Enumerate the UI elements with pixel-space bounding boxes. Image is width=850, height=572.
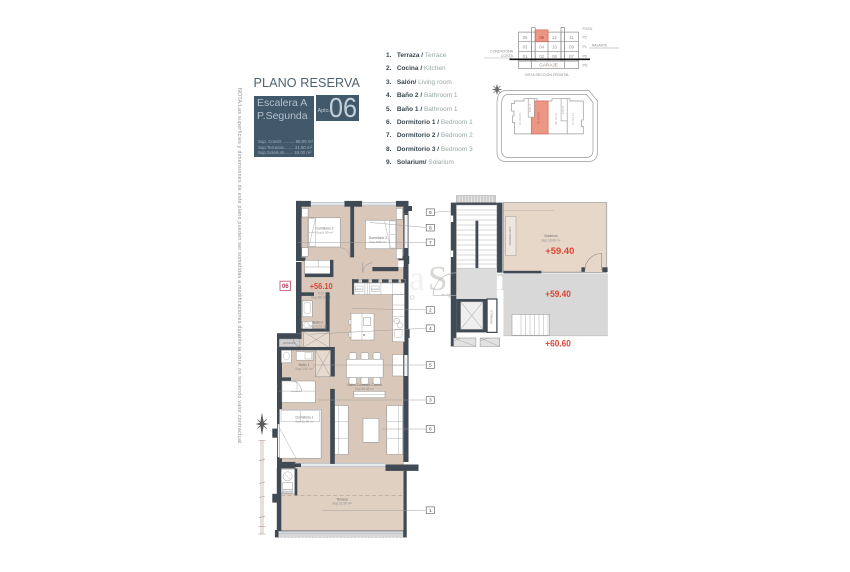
svg-text:P.SOL: P.SOL	[583, 27, 593, 31]
svg-text:02: 02	[539, 54, 544, 59]
svg-text:COSTA: COSTA	[501, 54, 514, 58]
svg-text:11: 11	[569, 35, 574, 40]
svg-text:+59.40: +59.40	[545, 246, 574, 256]
svg-text:02-04-06: 02-04-06	[537, 112, 541, 124]
svg-text:GARAJE: GARAJE	[539, 62, 557, 67]
svg-text:+56.10: +56.10	[310, 281, 333, 291]
svg-text:06: 06	[282, 284, 289, 290]
svg-text:Sup:11.00 m²: Sup:11.00 m²	[295, 419, 313, 423]
svg-text:10: 10	[552, 44, 557, 49]
svg-text:05: 05	[523, 35, 528, 40]
svg-text:ESC-A: ESC-A	[528, 104, 532, 113]
svg-text:LAVADERO: LAVADERO	[282, 491, 294, 494]
svg-text:08: 08	[552, 54, 557, 59]
svg-text:03: 03	[523, 44, 528, 49]
svg-text:06: 06	[539, 35, 544, 40]
svg-text:+59.40: +59.40	[545, 289, 571, 299]
svg-text:Sup:4.20 m²: Sup:4.20 m²	[309, 325, 326, 329]
svg-text:09: 09	[569, 44, 574, 49]
svg-text:07-09-11: 07-09-11	[571, 113, 575, 125]
svg-text:7: 7	[429, 240, 432, 246]
svg-text:5: 5	[429, 363, 432, 369]
svg-text:3: 3	[429, 398, 432, 404]
svg-text:RASANTE: RASANTE	[592, 44, 607, 48]
svg-text:PERGOLADA: PERGOLADA	[508, 227, 512, 246]
svg-text:MICRO: MICRO	[356, 289, 364, 291]
svg-text:P1: P1	[583, 45, 587, 49]
svg-text:08-10-12: 08-10-12	[554, 113, 558, 125]
svg-text:2: 2	[429, 308, 432, 314]
svg-text:Sup:9.00 m²: Sup:9.00 m²	[316, 231, 333, 235]
svg-text:01-03-05: 01-03-05	[518, 113, 522, 125]
svg-text:Sup:3.50 m²: Sup:3.50 m²	[295, 367, 312, 371]
svg-text:4: 4	[429, 326, 432, 332]
svg-text:P0: P0	[583, 55, 587, 59]
svg-text:Sup:30.85 m²: Sup:30.85 m²	[355, 387, 374, 391]
svg-text:VISTA SECCIÓN FRONTAL: VISTA SECCIÓN FRONTAL	[525, 72, 570, 77]
svg-text:P2: P2	[583, 36, 587, 40]
svg-text:ESC-B: ESC-B	[561, 106, 565, 115]
svg-text:9: 9	[429, 210, 432, 216]
svg-text:+60.60: +60.60	[545, 339, 571, 349]
svg-text:Solarium: Solarium	[544, 234, 558, 238]
svg-text:Sup. Com.: Sup. Com.	[441, 294, 452, 296]
svg-text:8: 8	[429, 225, 432, 231]
svg-text:PATINILLO: PATINILLO	[489, 309, 493, 324]
svg-text:04: 04	[539, 44, 544, 49]
svg-text:Sup:9.50 m²: Sup:9.50 m²	[370, 240, 387, 244]
svg-text:PS: PS	[583, 64, 588, 68]
svg-text:CONDICIONA: CONDICIONA	[490, 50, 514, 54]
svg-text:Sup:18.00 m²: Sup:18.00 m²	[541, 239, 560, 243]
svg-text:07: 07	[569, 54, 574, 59]
svg-text:1: 1	[429, 508, 432, 514]
svg-text:HORNO: HORNO	[371, 289, 379, 291]
svg-text:Sup:21.50 m²: Sup:21.50 m²	[332, 502, 351, 506]
svg-text:01: 01	[523, 54, 528, 59]
svg-text:6: 6	[429, 427, 432, 433]
svg-text:12: 12	[552, 35, 557, 40]
